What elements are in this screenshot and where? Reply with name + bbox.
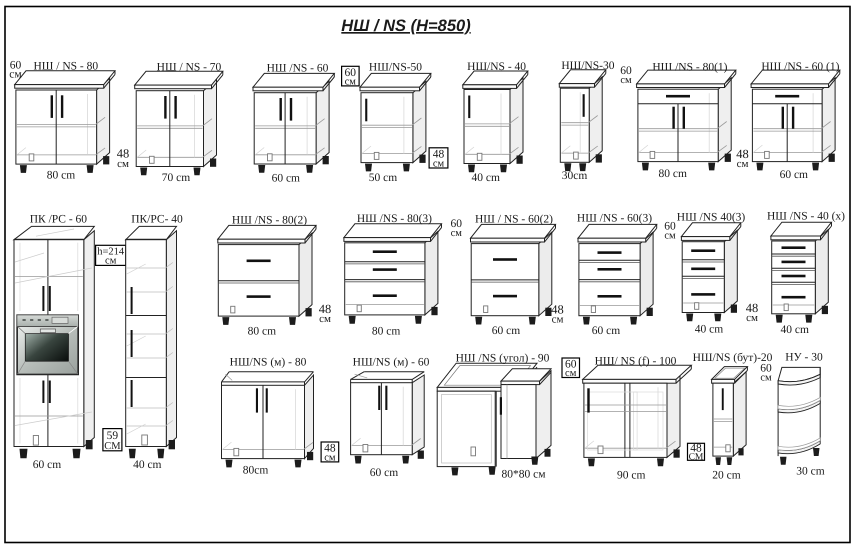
svg-text:см: см <box>105 255 117 266</box>
svg-text:СМ: СМ <box>104 441 121 452</box>
svg-text:80 cm: 80 cm <box>248 326 276 338</box>
svg-text:НШ/NS (м) - 80: НШ/NS (м) - 80 <box>230 357 307 369</box>
svg-text:НШ / NS (H=850): НШ / NS (H=850) <box>341 17 471 35</box>
svg-text:40 cm: 40 cm <box>780 324 808 336</box>
svg-text:80 cm: 80 cm <box>372 326 400 338</box>
svg-text:НШ /NS - 40 (х): НШ /NS - 40 (х) <box>767 211 845 223</box>
svg-text:см: см <box>324 452 336 463</box>
svg-text:см: см <box>433 159 445 170</box>
svg-text:НШ / NS - 70: НШ / NS - 70 <box>157 62 222 74</box>
svg-text:НШ /NS 40(3): НШ /NS 40(3) <box>677 212 746 224</box>
svg-text:80 cm: 80 cm <box>658 168 686 180</box>
svg-text:см: см <box>345 77 357 88</box>
svg-text:НШ/NS (м) - 60: НШ/NS (м) - 60 <box>353 357 430 369</box>
svg-text:см: см <box>9 69 22 81</box>
svg-text:НШ /NS (угол) - 90: НШ /NS (угол) - 90 <box>456 353 550 365</box>
svg-text:НШ /NS - 60(3): НШ /NS - 60(3) <box>577 213 652 225</box>
svg-text:см: см <box>760 372 772 383</box>
svg-text:ПК /РС - 60: ПК /РС - 60 <box>30 214 88 226</box>
svg-text:60 cm: 60 cm <box>272 173 300 185</box>
svg-text:60 cm: 60 cm <box>33 459 61 471</box>
svg-text:40 cm: 40 cm <box>695 324 723 336</box>
svg-text:НШ/ NS (f) - 100: НШ/ NS (f) - 100 <box>595 356 677 368</box>
svg-text:см: см <box>117 158 129 170</box>
svg-text:50 cm: 50 cm <box>369 172 397 184</box>
svg-text:60 cm: 60 cm <box>592 325 620 337</box>
svg-text:НУ - 30: НУ - 30 <box>785 352 823 364</box>
svg-text:см: см <box>451 228 463 239</box>
svg-text:см: см <box>664 231 676 242</box>
svg-text:30cm: 30cm <box>562 170 588 182</box>
svg-text:НШ/NS-30: НШ/NS-30 <box>561 60 614 72</box>
svg-text:90 cm: 90 cm <box>617 470 645 482</box>
svg-text:см: см <box>746 312 758 324</box>
svg-text:НШ /NS - 80(2): НШ /NS - 80(2) <box>232 215 307 227</box>
svg-text:40 cm: 40 cm <box>133 459 161 471</box>
svg-text:см: см <box>620 75 632 86</box>
svg-text:70 cm: 70 cm <box>162 172 190 184</box>
svg-text:см: см <box>737 158 749 170</box>
svg-text:80cm: 80cm <box>243 465 269 477</box>
svg-text:НШ / NS - 60(2): НШ / NS - 60(2) <box>475 214 553 226</box>
svg-text:НШ /NS - 60 (1): НШ /NS - 60 (1) <box>761 61 839 73</box>
svg-text:40 cm: 40 cm <box>471 172 499 184</box>
svg-text:НШ / NS - 80: НШ / NS - 80 <box>33 61 98 73</box>
svg-text:80 cm: 80 cm <box>47 170 75 182</box>
svg-text:НШ/NS-50: НШ/NS-50 <box>369 62 422 74</box>
svg-text:80*80 см: 80*80 см <box>501 469 546 481</box>
svg-text:ПК/РС- 40: ПК/РС- 40 <box>131 214 183 226</box>
svg-text:20 cm: 20 cm <box>712 470 740 482</box>
svg-text:60 cm: 60 cm <box>370 467 398 479</box>
svg-text:СМ: СМ <box>689 452 704 462</box>
svg-text:НШ /NS - 80(3): НШ /NS - 80(3) <box>357 213 432 225</box>
svg-text:см: см <box>552 314 564 326</box>
svg-text:НШ/NS - 40: НШ/NS - 40 <box>467 61 526 73</box>
svg-text:см: см <box>565 368 577 379</box>
svg-text:60 cm: 60 cm <box>492 325 520 337</box>
svg-text:см: см <box>319 313 331 325</box>
svg-text:НШ /NS - 60: НШ /NS - 60 <box>267 63 329 75</box>
svg-text:30 cm: 30 cm <box>796 466 824 478</box>
svg-text:60 cm: 60 cm <box>780 169 808 181</box>
svg-text:НШ /NS - 80(1): НШ /NS - 80(1) <box>652 61 727 73</box>
